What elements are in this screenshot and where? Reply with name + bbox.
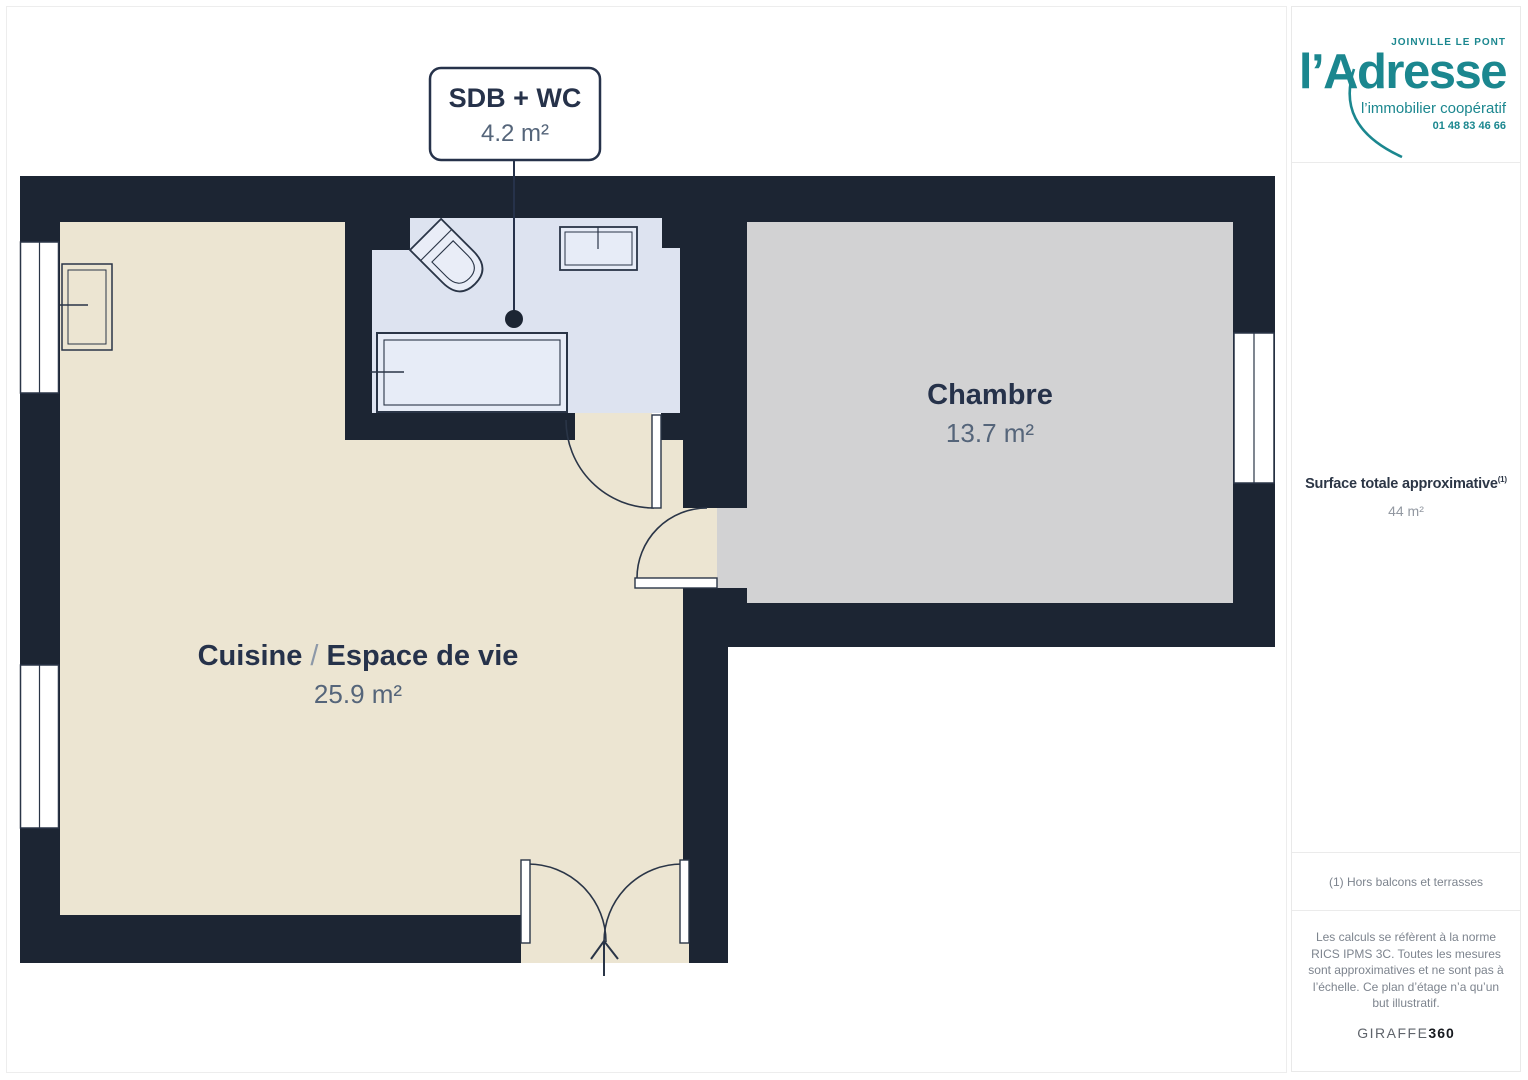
- giraffe360-watermark: GIRAFFE360: [1304, 1025, 1508, 1042]
- watermark-brand: GIRAFFE: [1357, 1025, 1428, 1041]
- bathroom-label-area: 4.2 m²: [481, 120, 549, 147]
- floorplan-drawing: SDB + WC 4.2 m² Chambre 13.7 m² Cuisine …: [0, 0, 1288, 1080]
- window-left-top: [21, 242, 59, 393]
- total-surface-footnote-marker: (1): [1498, 475, 1507, 484]
- bathroom-label-title: SDB + WC: [449, 83, 582, 113]
- kitchen-label-separator: /: [302, 640, 326, 672]
- legal-disclaimer: Les calculs se réfèrent à la norme RICS …: [1304, 929, 1508, 1012]
- legal-section: Les calculs se réfèrent à la norme RICS …: [1292, 911, 1520, 1071]
- bathroom-label-box: SDB + WC 4.2 m²: [430, 68, 600, 160]
- agency-logo: JOINVILLE LE PONT l’Adresse l’immobilier…: [1292, 7, 1520, 163]
- bedroom-floor: [717, 222, 1233, 603]
- info-panel: JOINVILLE LE PONT l’Adresse l’immobilier…: [1291, 6, 1521, 1072]
- logo-swoosh-icon: [1342, 65, 1412, 161]
- kitchen-label-area: 25.9 m²: [314, 679, 402, 709]
- total-surface-label-text: Surface totale approximative: [1305, 476, 1498, 492]
- watermark-suffix: 360: [1428, 1025, 1454, 1041]
- total-surface-value: 44 m²: [1292, 503, 1520, 519]
- window-bedroom: [1234, 333, 1274, 483]
- bathtub: [370, 333, 567, 412]
- bedroom-label-title: Chambre: [927, 379, 1053, 411]
- svg-text:Cuisine / Espace de vie: Cuisine / Espace de vie: [198, 640, 519, 672]
- kitchen-label-left: Cuisine: [198, 640, 303, 672]
- footnote: (1) Hors balcons et terrasses: [1292, 853, 1520, 911]
- total-surface-section: Surface totale approximative(1) 44 m²: [1292, 163, 1520, 853]
- floorplan-page: SDB + WC 4.2 m² Chambre 13.7 m² Cuisine …: [0, 0, 1528, 1080]
- sink: [560, 227, 637, 270]
- window-left-bottom: [21, 665, 59, 828]
- total-surface-label: Surface totale approximative(1): [1292, 475, 1520, 492]
- bedroom-label-area: 13.7 m²: [946, 418, 1034, 448]
- kitchen-label-right: Espace de vie: [327, 640, 519, 672]
